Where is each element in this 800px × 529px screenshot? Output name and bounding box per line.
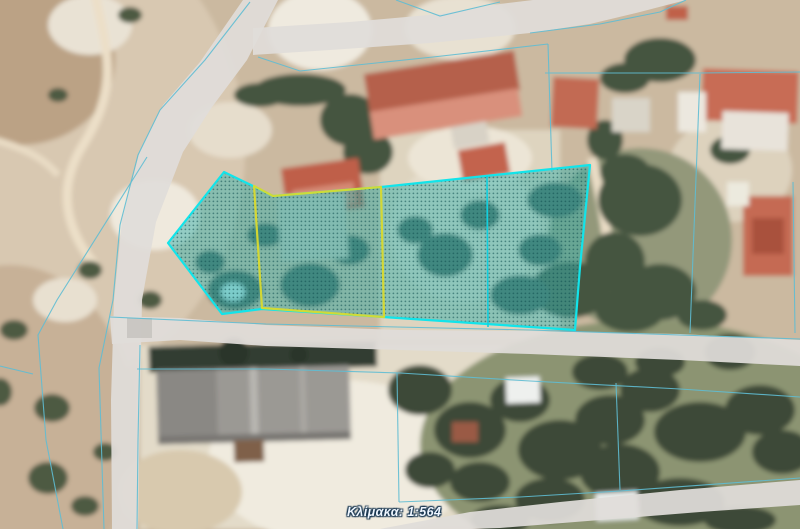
road-junction-patch [127,318,152,338]
selected-parcel-highlight[interactable] [168,165,590,330]
map-viewport: Κλίμακα: 1:564 [0,0,800,529]
parcel-divider-line [487,176,488,327]
selected-parcel-layer [168,165,590,330]
map-canvas[interactable] [0,0,800,529]
